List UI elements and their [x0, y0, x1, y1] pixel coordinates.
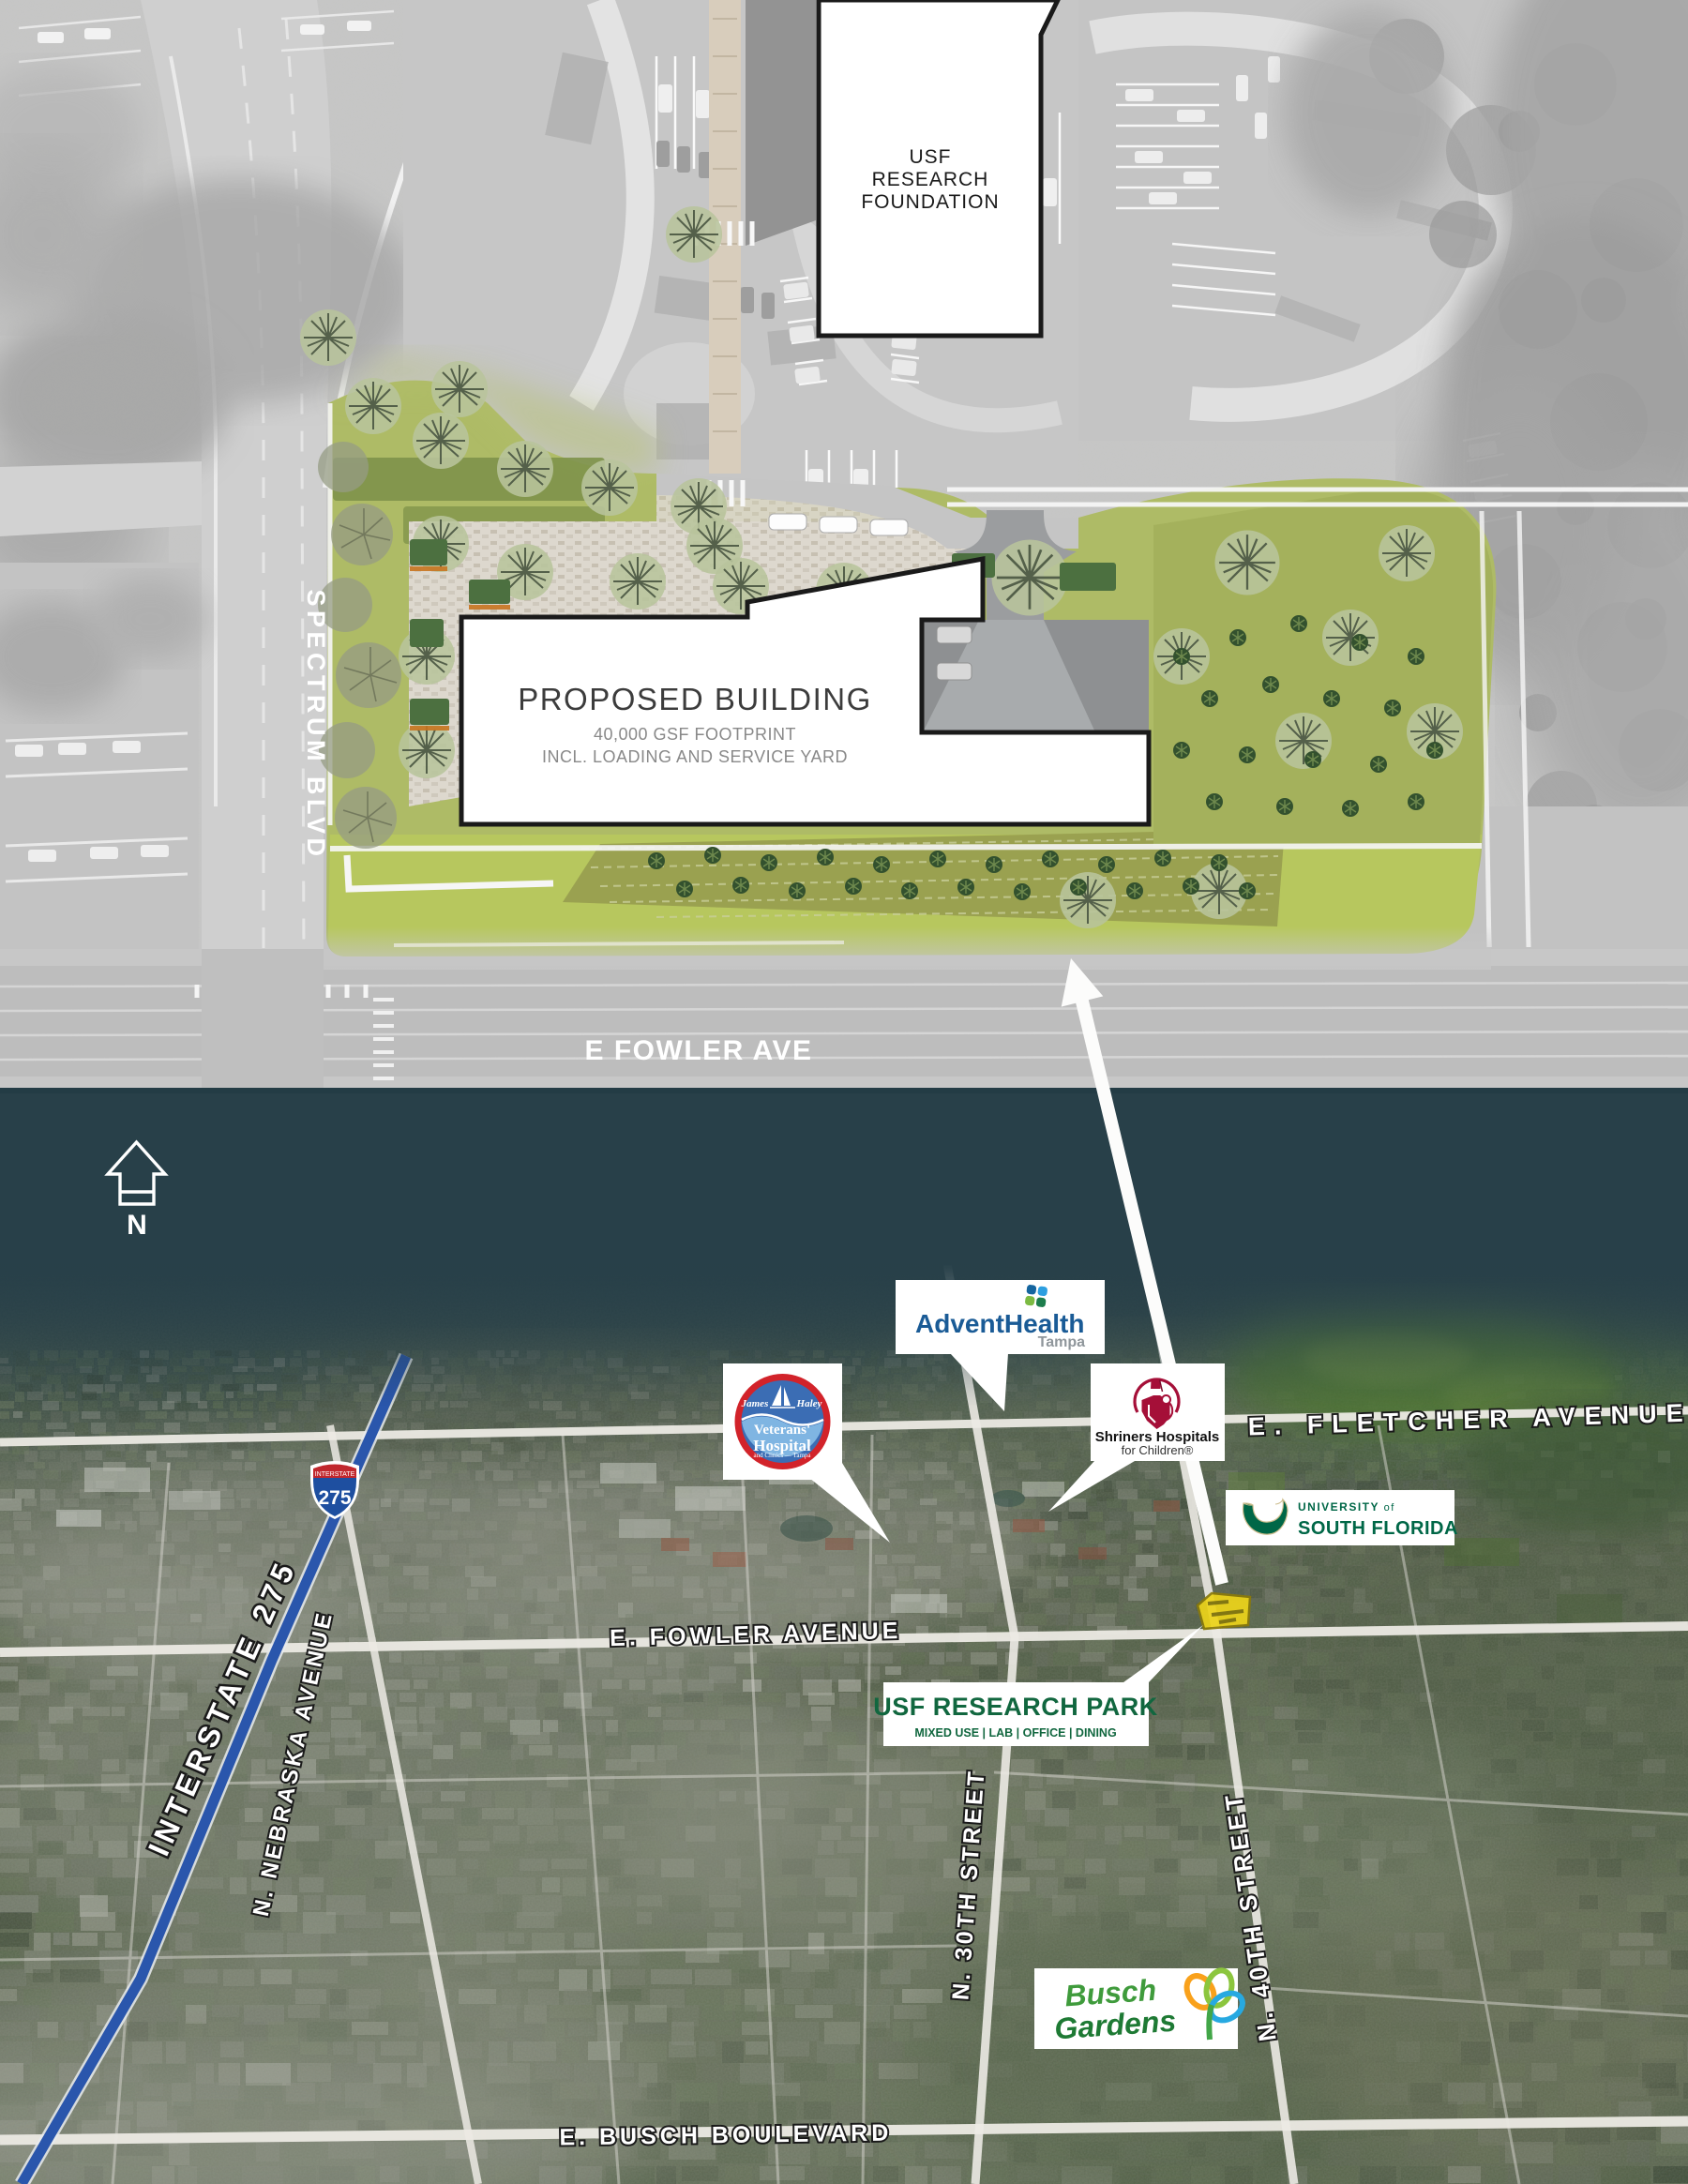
- svg-text:James: James: [741, 1398, 769, 1409]
- svg-text:Haley: Haley: [796, 1398, 822, 1409]
- svg-text:INCL. LOADING AND SERVICE YARD: INCL. LOADING AND SERVICE YARD: [542, 747, 848, 766]
- svg-text:PROPOSED BUILDING: PROPOSED BUILDING: [518, 682, 872, 716]
- svg-text:E. BUSCH BOULEVARD: E. BUSCH BOULEVARD: [559, 2120, 892, 2151]
- svg-text:USF: USF: [910, 146, 952, 168]
- svg-text:SPECTRUM BLVD: SPECTRUM BLVD: [302, 589, 330, 860]
- svg-text:SOUTH FLORIDA: SOUTH FLORIDA: [1298, 1518, 1458, 1539]
- svg-text:and Clinics — Tampa: and Clinics — Tampa: [753, 1452, 811, 1459]
- svg-text:Tampa: Tampa: [1038, 1334, 1085, 1350]
- svg-text:40,000 GSF FOOTPRINT: 40,000 GSF FOOTPRINT: [594, 725, 796, 744]
- svg-text:INTERSTATE: INTERSTATE: [315, 1471, 355, 1478]
- svg-text:N: N: [127, 1210, 147, 1241]
- svg-text:for Children®: for Children®: [1122, 1443, 1194, 1457]
- svg-text:MIXED USE | LAB | OFFICE | DIN: MIXED USE | LAB | OFFICE | DINING: [914, 1726, 1116, 1740]
- svg-text:Veterans': Veterans': [754, 1423, 810, 1438]
- svg-text:UNIVERSITY of: UNIVERSITY of: [1298, 1500, 1395, 1514]
- svg-text:275: 275: [318, 1487, 351, 1509]
- svg-text:RESEARCH: RESEARCH: [872, 169, 989, 190]
- svg-text:USF RESEARCH PARK: USF RESEARCH PARK: [873, 1693, 1158, 1721]
- svg-text:E FOWLER AVE: E FOWLER AVE: [585, 1035, 813, 1066]
- svg-text:FOUNDATION: FOUNDATION: [861, 191, 999, 213]
